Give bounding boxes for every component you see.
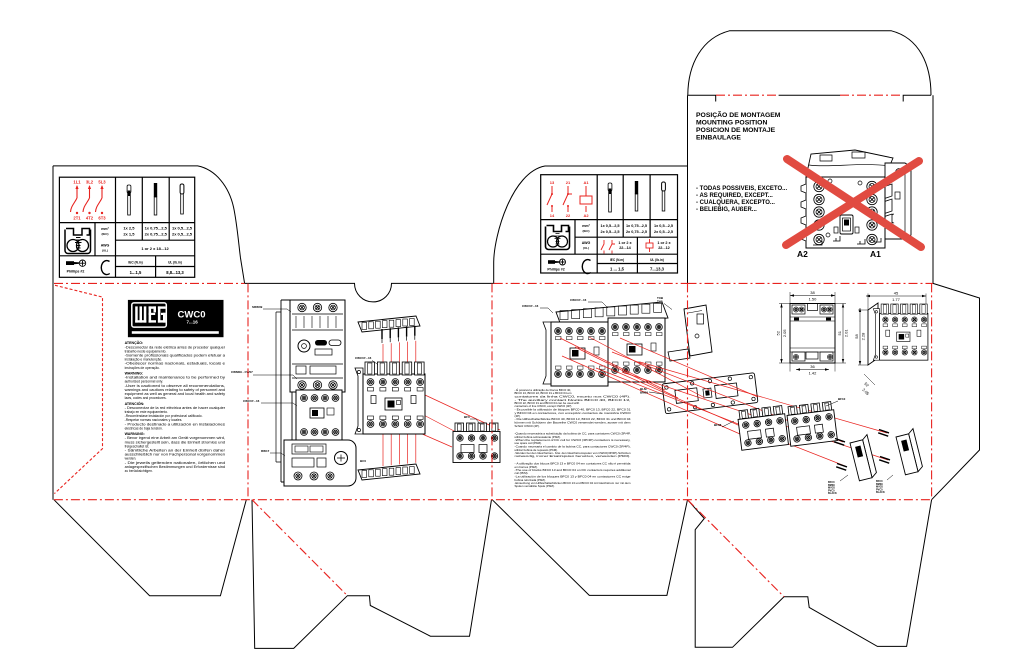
- svg-text:1 or 2 x: 1 or 2 x: [657, 241, 671, 245]
- svg-text:2T1: 2T1: [73, 216, 81, 221]
- svg-text:CWC07...16: CWC07...16: [355, 356, 372, 360]
- svg-text:51: 51: [837, 330, 842, 335]
- svg-text:SRW09: SRW09: [252, 305, 263, 309]
- svg-text:POSICION DE MONTAJE: POSICION DE MONTAJE: [696, 127, 776, 134]
- svg-text:mm²: mm²: [582, 224, 590, 228]
- svg-text:21: 21: [566, 180, 571, 185]
- svg-text:IEC (N.m): IEC (N.m): [128, 261, 142, 265]
- svg-text:22...14: 22...14: [619, 246, 631, 250]
- svg-text:1x 0,5...2,5: 1x 0,5...2,5: [654, 224, 673, 228]
- svg-text:1.77: 1.77: [892, 297, 901, 302]
- svg-text:UL (lb.in): UL (lb.in): [650, 258, 664, 262]
- svg-text:36: 36: [810, 364, 815, 369]
- svg-text:1x 0,5...2,5: 1x 0,5...2,5: [172, 226, 193, 231]
- svg-text:laws, codes and procedures.: laws, codes and procedures.: [125, 396, 167, 400]
- svg-text:ausschließlich nur von Fachper: ausschließlich nur von Fachpersonal vorg…: [125, 453, 226, 457]
- svg-text:7...16: 7...16: [187, 320, 199, 325]
- svg-text:22...12: 22...12: [658, 246, 670, 250]
- svg-text:zu berücksichtigen.: zu berücksichtigen.: [125, 469, 153, 473]
- svg-text:BM09: BM09: [640, 391, 648, 395]
- svg-text:1L1: 1L1: [73, 180, 81, 185]
- svg-text:(UL): (UL): [102, 249, 108, 253]
- svg-text:2.01: 2.01: [844, 329, 849, 338]
- svg-text:AWG: AWG: [582, 241, 591, 245]
- svg-text:3L2: 3L2: [86, 180, 94, 185]
- svg-text:1 or 2 x: 1 or 2 x: [618, 241, 632, 245]
- svg-text:eléctricas de baja tensión.: eléctricas de baja tensión.: [125, 426, 163, 430]
- svg-text:BF10: BF10: [838, 397, 846, 401]
- svg-text:2x 0,5...2,5: 2x 0,5...2,5: [601, 230, 620, 234]
- svg-text:58: 58: [854, 334, 859, 339]
- svg-text:- AS REQUIRED, EXCEPT...: - AS REQUIRED, EXCEPT...: [696, 193, 773, 199]
- svg-text:y BFC0 04 en contactores, con: y BFC0 04 en contactores, con excepción …: [515, 411, 631, 415]
- svg-text:4T2: 4T2: [86, 216, 94, 221]
- svg-text:14: 14: [550, 213, 555, 218]
- svg-text:2x 0,75...2,5: 2x 0,75...2,5: [626, 230, 647, 234]
- svg-text:MOUNTING POSITION: MOUNTING POSITION: [696, 120, 767, 127]
- svg-text:IEC (N.m): IEC (N.m): [610, 258, 624, 262]
- svg-text:Phillips #2: Phillips #2: [547, 268, 564, 272]
- svg-text:BLACK: BLACK: [876, 491, 885, 494]
- svg-text:POSIÇÃO DE MONTAGEM: POSIÇÃO DE MONTAGEM: [696, 110, 781, 119]
- svg-text:EINBAULAGE: EINBAULAGE: [696, 135, 741, 142]
- svg-text:52: 52: [776, 330, 781, 335]
- svg-text:1.50: 1.50: [809, 297, 818, 302]
- svg-text:22: 22: [566, 213, 571, 218]
- svg-text:2.28: 2.28: [861, 332, 866, 341]
- svg-text:45: 45: [894, 291, 899, 296]
- svg-text:13: 13: [550, 180, 555, 185]
- svg-text:AWG: AWG: [101, 244, 110, 248]
- svg-text:2x 1,5: 2x 1,5: [123, 232, 135, 237]
- svg-text:2x 0,5...2,5: 2x 0,5...2,5: [172, 232, 193, 237]
- svg-text:1x 0,75...2,5: 1x 0,75...2,5: [626, 224, 647, 228]
- svg-text:38: 38: [810, 290, 815, 295]
- svg-text:BF08: BF08: [714, 423, 722, 427]
- svg-text:A1: A1: [870, 249, 881, 259]
- svg-text:1...1,5: 1...1,5: [130, 270, 142, 275]
- svg-text:CWC07...16: CWC07...16: [570, 298, 587, 302]
- svg-text:UL (lb.in): UL (lb.in): [168, 261, 182, 265]
- svg-text:1x 0,75...2,5: 1x 0,75...2,5: [145, 226, 168, 231]
- svg-text:1 or 2 x 18...12: 1 or 2 x 18...12: [141, 246, 169, 251]
- svg-text:- TODAS POSSIVEIS, EXCETO...: - TODAS POSSIVEIS, EXCETO...: [696, 186, 787, 192]
- svg-text:Schütz CWC0 (4P).: Schütz CWC0 (4P).: [515, 424, 540, 428]
- svg-text:BF0: BF0: [464, 415, 470, 419]
- svg-text:-The use of blocks BFC0 13 and: -The use of blocks BFC0 13 and BFC0 04 o…: [515, 468, 631, 472]
- svg-text:A2: A2: [797, 249, 808, 259]
- svg-text:- CUALQUERA, EXCEPTO...: - CUALQUERA, EXCEPTO...: [696, 200, 775, 206]
- svg-text:BC0: BC0: [360, 459, 366, 463]
- svg-text:A1: A1: [583, 180, 589, 185]
- svg-text:6T3: 6T3: [98, 216, 106, 221]
- svg-text:1 ... 1,5: 1 ... 1,5: [610, 267, 625, 272]
- svg-text:1x 2,5: 1x 2,5: [123, 226, 135, 231]
- svg-text:1.42: 1.42: [809, 371, 818, 376]
- svg-text:RW17: RW17: [261, 449, 270, 453]
- svg-text:CWC07...16: CWC07...16: [243, 399, 260, 403]
- svg-text:instruções de operação.: instruções de operação.: [125, 366, 160, 370]
- svg-text:(IEC): (IEC): [102, 232, 109, 236]
- svg-text:mm²: mm²: [101, 227, 109, 231]
- svg-text:(IEC): (IEC): [583, 229, 590, 233]
- svg-text:CWM09 - CW07: CWM09 - CW07: [231, 370, 253, 374]
- svg-text:notwendig, immer Ersatzspulen: notwendig, immer Ersatzspulen benutzen, …: [515, 454, 631, 458]
- svg-text:(UL): (UL): [583, 246, 589, 250]
- svg-text:A2: A2: [583, 213, 589, 218]
- svg-text:2.05: 2.05: [782, 329, 787, 338]
- svg-text:BLACK: BLACK: [828, 492, 837, 495]
- svg-text:TX2: TX2: [657, 300, 663, 304]
- svg-text:5L3: 5L3: [98, 180, 106, 185]
- svg-text:2x 0,75...2,5: 2x 0,75...2,5: [145, 232, 168, 237]
- svg-text:2x 0,5...2,5: 2x 0,5...2,5: [654, 230, 673, 234]
- svg-text:- BELIEBIG, AUßER...: - BELIEBIG, AUßER...: [696, 207, 757, 213]
- svg-text:7...13,3: 7...13,3: [650, 267, 665, 272]
- svg-text:Spulen verstärkte Spule (PbM).: Spulen verstärkte Spule (PbM).: [515, 484, 555, 488]
- svg-text:8,8...13,3: 8,8...13,3: [166, 270, 184, 275]
- svg-text:Phillips #2: Phillips #2: [67, 270, 85, 274]
- svg-text:CWC07...16: CWC07...16: [522, 304, 539, 308]
- svg-text:1x 0,5...2,5: 1x 0,5...2,5: [601, 224, 620, 228]
